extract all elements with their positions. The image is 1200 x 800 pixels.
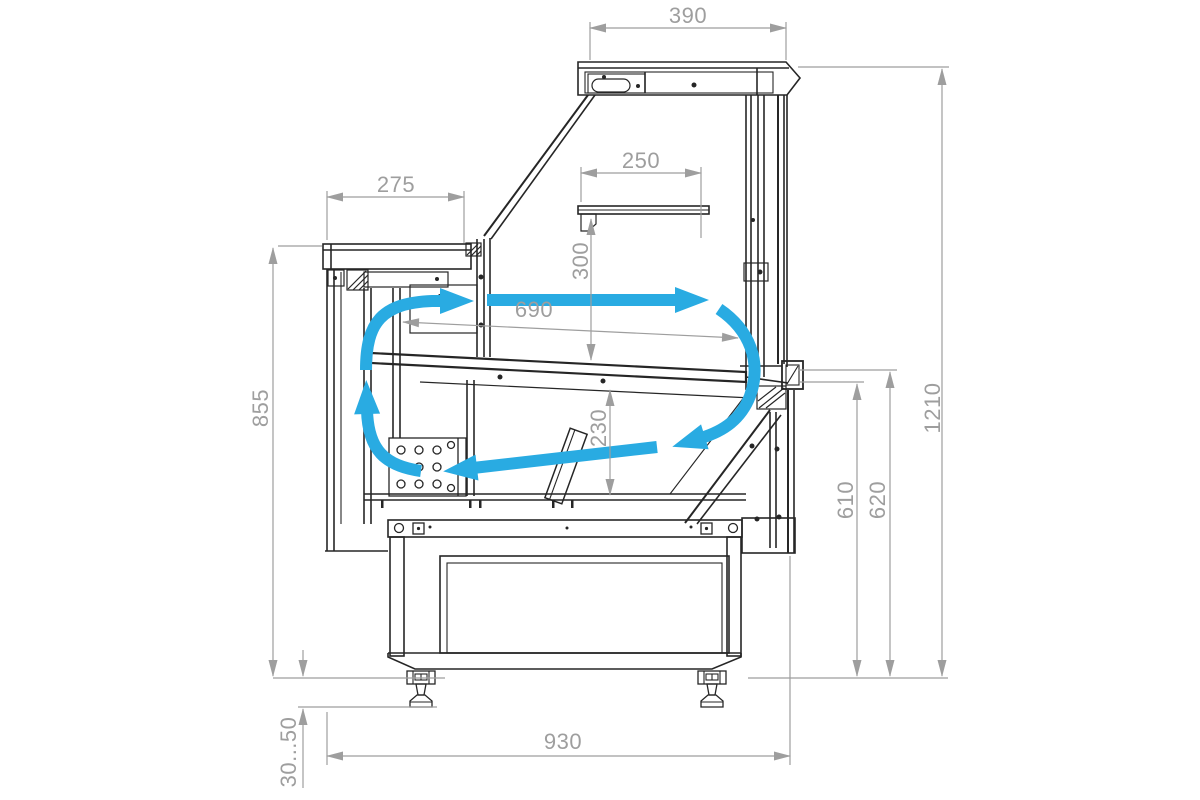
- dim-rear-height: [273, 246, 322, 676]
- technical-drawing-page: 390 275 250 300 690 230 855 610 620 1210…: [0, 0, 1200, 800]
- dim-shelf-depth: [581, 167, 701, 238]
- rear-worktop: [323, 244, 471, 269]
- display-case-section-drawing: 390 275 250 300 690 230 855 610 620 1210…: [0, 0, 1200, 800]
- dim-label-display-opening: 690: [515, 297, 553, 322]
- base-plinth: [388, 537, 741, 669]
- adjustable-foot-right: [698, 671, 726, 707]
- airflow-arrow-bottom-return: [473, 447, 657, 468]
- dim-label-shelf-to-deck: 300: [568, 242, 593, 280]
- dim-label-front-height-620: 620: [865, 481, 890, 519]
- dim-label-rear-height: 855: [248, 389, 273, 427]
- display-shelf: [578, 206, 709, 231]
- canopy-light-fixture: [592, 75, 640, 92]
- dim-worktop-depth: [327, 191, 464, 243]
- sill-hatch: [757, 386, 786, 409]
- adjustable-foot-left: [407, 671, 435, 707]
- display-case-outline: [323, 62, 803, 707]
- airflow-arrow-rear-duct-rise: [366, 301, 444, 370]
- dim-label-shelf-depth: 250: [622, 148, 660, 173]
- dim-label-front-height-610: 610: [833, 481, 858, 519]
- airflow-arrow-left-riser: [367, 410, 421, 471]
- dim-label-canopy-depth: 390: [669, 3, 707, 28]
- airflow-arrows: [366, 300, 755, 471]
- dim-front-height-620: [798, 370, 897, 676]
- dim-display-opening: [403, 322, 738, 338]
- dim-label-foot-adjust: 30...50: [276, 717, 301, 788]
- dim-label-deck-to-floor: 230: [586, 409, 611, 447]
- dim-label-overall-depth: 930: [544, 729, 582, 754]
- dim-front-height-610: [800, 382, 864, 676]
- display-deck: [371, 353, 788, 398]
- base-rail: [388, 520, 742, 537]
- dim-overall-height: [798, 67, 949, 676]
- dim-label-worktop-depth: 275: [377, 172, 415, 197]
- canopy: [578, 62, 800, 95]
- dimension-annotations: 390 275 250 300 690 230 855 610 620 1210…: [248, 3, 949, 788]
- air-deflector-plate: [545, 428, 587, 504]
- dim-label-overall-height: 1210: [920, 383, 945, 434]
